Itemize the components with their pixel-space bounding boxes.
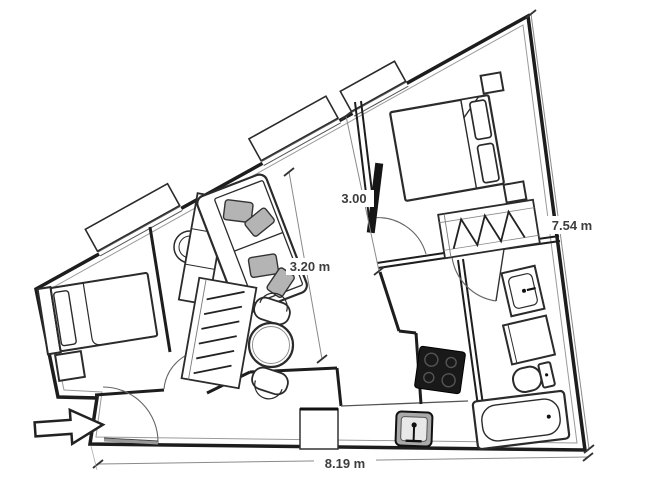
sofa-cushion [248,254,279,278]
floor-plan-canvas: 7.54 m 8.19 m 3.20 m 3.00 [0,0,650,488]
sink-front-line [406,441,422,442]
double-bed [390,95,504,201]
sink-faucet-stem [414,425,415,440]
cabinet [300,409,338,449]
table-top [249,323,293,367]
dining-table [249,323,293,367]
nightstand-top [504,181,527,202]
bathtub [472,391,569,450]
dimension-label-right: 7.54 m [552,218,592,233]
wall-kitchen-nook [399,331,416,333]
stove [414,346,465,394]
cabinet-body [300,409,338,449]
nightstand [504,181,527,202]
dimension-label-living-width: 3.20 m [290,259,330,274]
nightstand [55,351,85,381]
dimension-label-bedroom-width: 3.00 [341,191,366,206]
nightstand [481,72,504,93]
washing-machine-body [503,316,555,365]
dimension-label-bottom: 8.19 m [325,456,365,471]
nightstand-top [55,351,85,381]
floor-plan: 7.54 m 8.19 m 3.20 m 3.00 [0,0,650,488]
nightstand-top [481,72,504,93]
washing-machine [503,316,555,365]
kitchen-sink [395,411,432,446]
stove-top [414,346,465,394]
